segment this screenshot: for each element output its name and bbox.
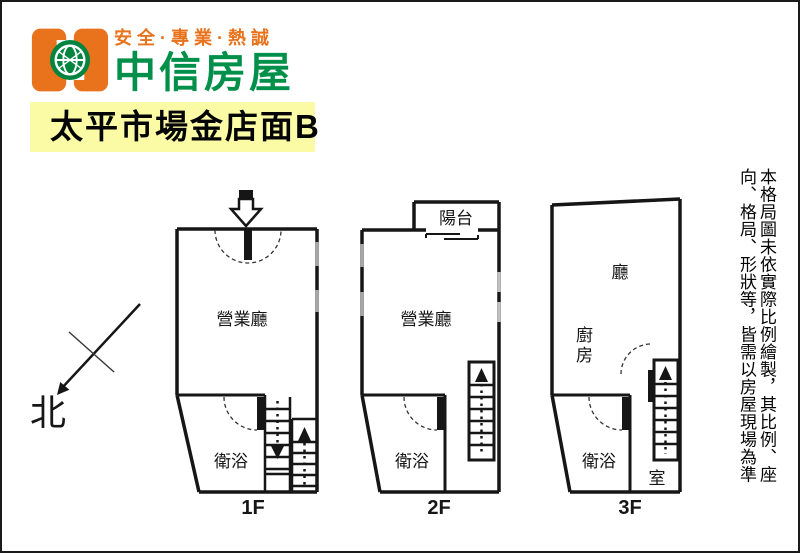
sliding-door (426, 234, 478, 239)
floor-label-2f: 2F (427, 497, 450, 519)
listing-title: 太平市場金店面B (30, 102, 315, 152)
room-label-room-3f: 室 (649, 469, 666, 488)
room-label-bath-2f: 衛浴 (395, 452, 429, 471)
stairs-up-arrow-icon (298, 427, 311, 441)
door-swing-arc (224, 397, 257, 430)
brand-name: 中信房屋 (114, 50, 324, 96)
brand-emblem-icon (30, 24, 110, 96)
room-label-bath-3f: 衛浴 (582, 452, 616, 471)
brand-logo: 安全·專業·熱誠 中信房屋 (26, 20, 326, 100)
north-arrow-icon (57, 304, 140, 395)
room-label-kitchen-3f: 廚房 (570, 326, 595, 374)
stairs-up-arrow-icon (475, 368, 488, 382)
brand-slogan: 安全·專業·熱誠 (114, 24, 324, 50)
bathroom-door (622, 397, 630, 430)
entrance-door (244, 229, 252, 260)
north-compass: 北 (17, 287, 152, 447)
north-label: 北 (30, 392, 66, 433)
flyer-canvas: 安全·專業·熱誠 中信房屋 太平市場金店面B 北 (0, 0, 800, 553)
floor-label-1f: 1F (241, 497, 264, 519)
room-label-main-1f: 營業廳 (217, 310, 268, 329)
room-label-hall-3f: 廳 (612, 263, 629, 282)
door-swing-arc (404, 397, 437, 430)
staircase (265, 395, 317, 492)
floor-plan-1f: 營業廳 衛浴 1F (167, 182, 327, 527)
door-swing-arc (621, 344, 651, 374)
floor-plan-3f: 廳 衛浴 室 3F (542, 182, 702, 527)
floor-label-3f: 3F (618, 497, 641, 519)
room-label-main-2f: 營業廳 (401, 310, 452, 329)
room-label-bath-1f: 衛浴 (214, 452, 248, 471)
disclaimer-text: 本格局圖未依實際比例繪製，其比例、座向、格局、形狀等，皆需以房屋現場為準 (736, 168, 776, 492)
stairs-up-arrow-icon (659, 366, 672, 380)
bathroom-door (437, 397, 445, 430)
door-swing-arc (589, 397, 622, 430)
entrance-arrow-icon (231, 190, 261, 226)
floor-plan-2f: 陽台 營業廳 衛浴 2F (352, 182, 512, 527)
room-label-balcony-2f: 陽台 (439, 209, 473, 228)
